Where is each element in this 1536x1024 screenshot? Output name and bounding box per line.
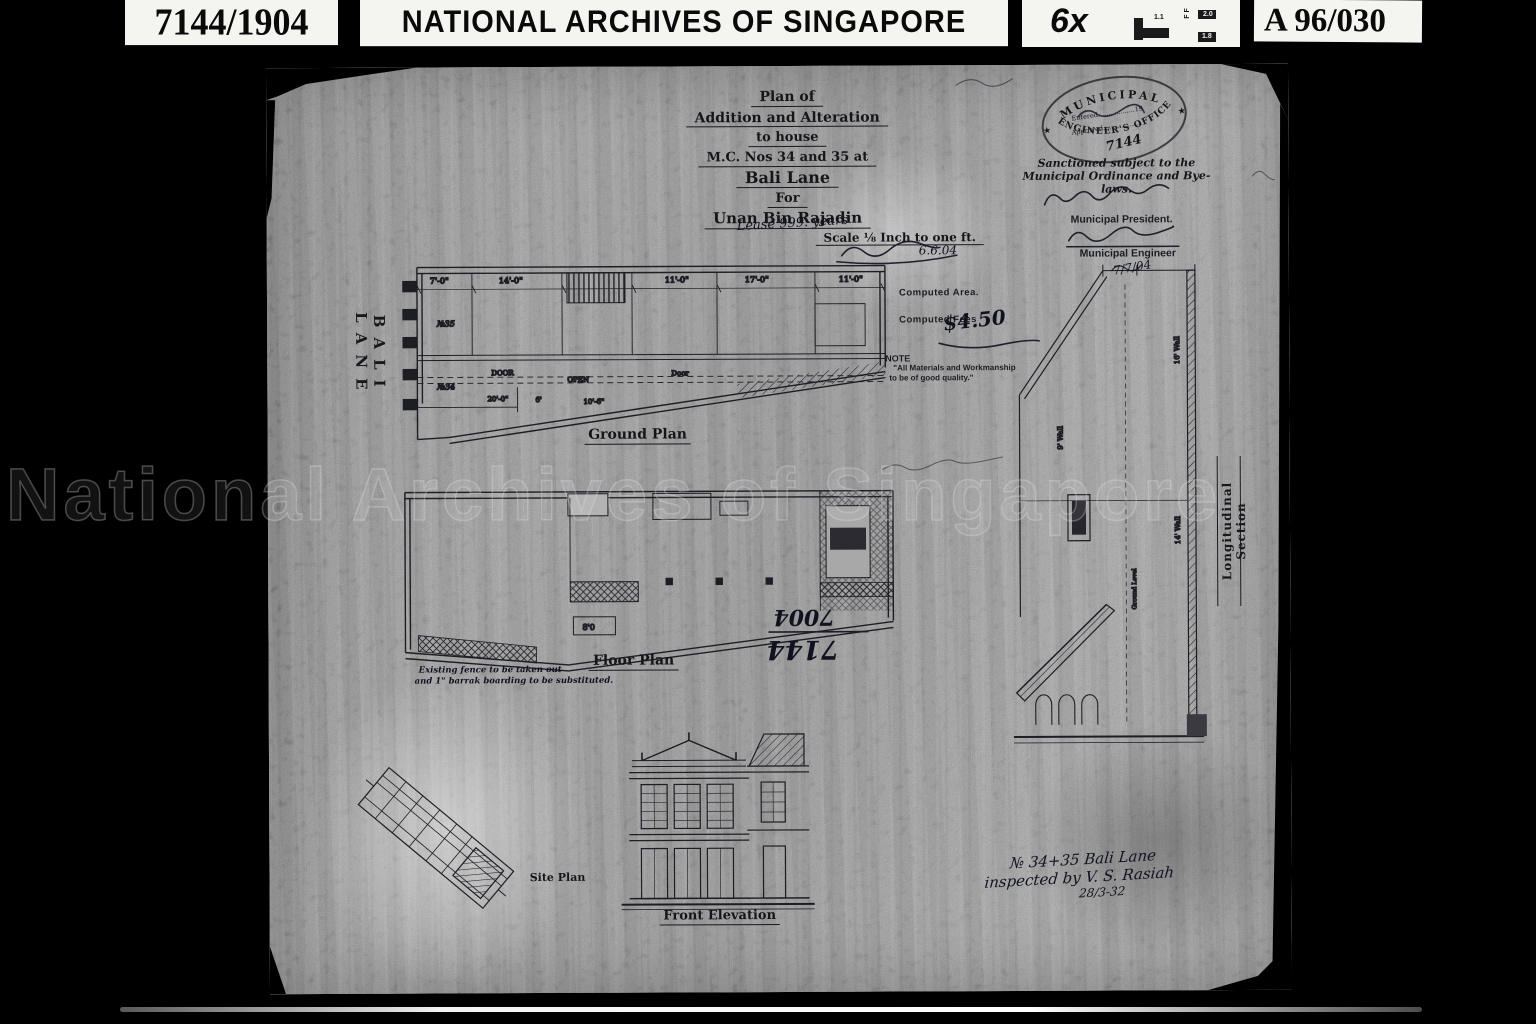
dimension-label: 11'-0" bbox=[839, 275, 863, 284]
room-label: OPEN bbox=[567, 376, 589, 384]
ground-plan-label: Ground Plan bbox=[558, 426, 718, 445]
room-label: №35 bbox=[436, 319, 455, 328]
president-label: Municipal President. bbox=[1057, 213, 1187, 226]
film-reference-right: A 96/030 bbox=[1254, 0, 1422, 43]
site-plan-drawing bbox=[351, 761, 522, 914]
wall-label: 16' Wall bbox=[1173, 335, 1181, 364]
floor-plan-label: Floor Plan bbox=[554, 652, 714, 671]
dimension-label: 7'-0" bbox=[430, 276, 449, 285]
longitudinal-section-label: Longitudinal Section bbox=[1217, 456, 1242, 606]
star-icon: ★ bbox=[1043, 126, 1052, 137]
dimension-label: 20'-0" bbox=[487, 395, 508, 403]
dimension-label: 14'-0" bbox=[499, 276, 523, 285]
title-line: Bali Lane bbox=[737, 169, 838, 188]
street-name-label: BALI LANE bbox=[366, 276, 389, 436]
room-label: DOOR bbox=[491, 369, 514, 377]
archive-title: NATIONAL ARCHIVES OF SINGAPORE bbox=[402, 4, 966, 40]
note-body-line: to be of good quality." bbox=[889, 373, 1059, 383]
title-line: to house bbox=[748, 131, 826, 147]
sanction-line: Sanctioned subject to the bbox=[1021, 156, 1211, 170]
title-line: Addition and Alteration bbox=[687, 110, 888, 128]
target-value: 1.1 bbox=[1154, 14, 1164, 21]
note-title: NOTE bbox=[885, 353, 910, 363]
sanction-line: Municipal Ordinance and Bye-laws. bbox=[1021, 169, 1211, 196]
site-plan-label: Site Plan bbox=[507, 871, 607, 885]
ground-plan-drawing: 7'-0" 14'-0" 11'-0" 17'-0" 11'-0" №35 №3… bbox=[403, 266, 886, 444]
lease-date: 6.6.04 bbox=[919, 243, 957, 257]
title-line: Plan of bbox=[751, 90, 822, 107]
film-reference-left: 7144/1904 bbox=[125, 0, 338, 45]
dimension-label: 10'-6" bbox=[583, 398, 604, 406]
dimension-label: 6' bbox=[535, 396, 541, 404]
computed-area-label: Computed Area. bbox=[899, 287, 979, 298]
title-line: For bbox=[768, 192, 808, 208]
dimension-label: 11'-0" bbox=[665, 275, 689, 284]
archive-title-bar: NATIONAL ARCHIVES OF SINGAPORE bbox=[360, 0, 1008, 46]
sanction-note: Sanctioned subject to the Municipal Ordi… bbox=[1021, 156, 1211, 196]
wall-label: Ground Level bbox=[1131, 568, 1138, 609]
title-scale-line: Scale ⅛ Inch to one ft. bbox=[815, 231, 983, 246]
front-elevation-label: Front Elevation bbox=[645, 908, 795, 926]
film-magnification-panel: 6x 1.1 F F 2.0 1.8 bbox=[1022, 0, 1240, 47]
plan-number-upside-down: 7144 bbox=[766, 634, 839, 664]
scanned-drawing-sheet: 7'-0" 14'-0" 11'-0" 17'-0" 11'-0" №35 №3… bbox=[266, 64, 1292, 994]
target-value: F F bbox=[1184, 8, 1191, 19]
reference-number: A 96/030 bbox=[1264, 2, 1386, 40]
reference-number: 7144/1904 bbox=[154, 0, 308, 44]
star-icon: ★ bbox=[1177, 106, 1186, 117]
dimension-label: 8'0 bbox=[582, 623, 594, 632]
microfilm-frame: 7144/1904 NATIONAL ARCHIVES OF SINGAPORE… bbox=[0, 0, 1536, 1024]
wall-label: 14' Wall bbox=[1174, 515, 1182, 544]
longitudinal-section-drawing: 16' Wall 9' Wall 14' Wall Ground Level bbox=[1012, 264, 1207, 743]
title-line: M.C. Nos 34 and 35 at bbox=[699, 151, 877, 167]
room-label: №34 bbox=[436, 382, 455, 391]
note-body-line: "All Materials and Workmanship bbox=[893, 363, 1063, 373]
resolution-target-icon bbox=[1143, 28, 1169, 38]
room-label: Door bbox=[671, 369, 689, 377]
wall-label: 9' Wall bbox=[1057, 425, 1065, 450]
handwritten-signatures bbox=[836, 78, 1276, 470]
front-elevation-drawing bbox=[621, 732, 815, 910]
dimension-label: 17'-0" bbox=[745, 275, 769, 284]
plan-number-upside-down: 7004 bbox=[773, 604, 834, 630]
target-value: 2.0 bbox=[1203, 11, 1213, 18]
target-value: 1.8 bbox=[1202, 33, 1212, 40]
film-edge-line bbox=[120, 1007, 1422, 1012]
resolution-target-icon bbox=[1134, 18, 1143, 40]
magnification-value: 6x bbox=[1050, 2, 1088, 41]
engineer-label: Municipal Engineer bbox=[1063, 247, 1193, 260]
